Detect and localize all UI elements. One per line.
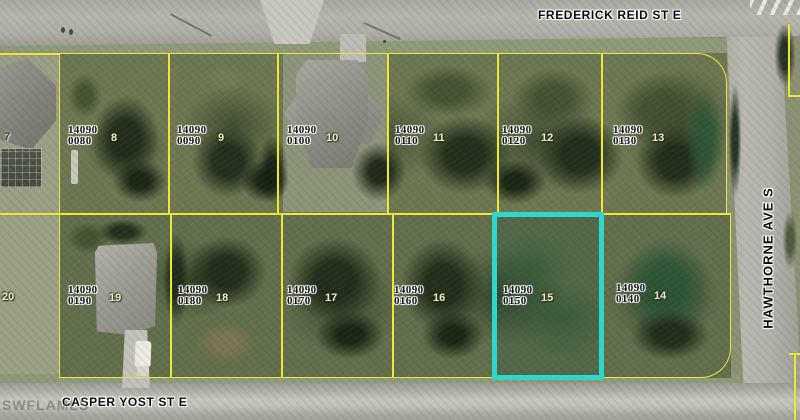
lot-number-7: 7	[4, 131, 10, 143]
apn-line2: 0160	[394, 296, 418, 307]
lot-number-9: 9	[218, 132, 224, 144]
street-label-hawthorne: HAWTHORNE AVE S	[761, 187, 776, 328]
parcel-line	[0, 53, 59, 55]
lot-number-16: 16	[433, 292, 445, 304]
apn-line2: 0170	[287, 296, 311, 307]
lot-number-12: 12	[541, 132, 553, 144]
parcel-line	[788, 95, 800, 97]
parcel-line	[170, 213, 172, 378]
aerial-parcel-map[interactable]: 140900080 140900090 140900100 140900110 …	[0, 0, 800, 420]
parcel-line	[601, 53, 603, 214]
pedestrian	[61, 27, 65, 33]
street-label-frederick-reid: FREDERICK REID ST E	[538, 8, 681, 22]
apn-line2: 0180	[178, 296, 202, 307]
tree-canopy	[770, 10, 800, 100]
apn-line2: 0080	[68, 136, 92, 147]
apn-line2: 0100	[287, 136, 311, 147]
apn-line2: 0110	[395, 136, 418, 147]
lot-number-20: 20	[2, 291, 14, 303]
pool-enclosure-lot7	[0, 148, 42, 188]
apn-line2: 0190	[68, 296, 92, 307]
pedestrian	[69, 29, 73, 35]
lot-number-10: 10	[326, 132, 338, 144]
lot-number-19: 19	[109, 292, 121, 304]
tree-canopy	[726, 60, 744, 220]
lot-number-11: 11	[433, 132, 445, 144]
tree-canopy	[780, 200, 800, 280]
lot-number-17: 17	[325, 292, 337, 304]
parcel-line	[497, 53, 499, 214]
pavement-markings	[750, 0, 800, 15]
lot-number-14: 14	[654, 290, 666, 302]
parcel-line	[0, 213, 731, 215]
apn-line2: 0090	[177, 136, 201, 147]
lot-number-15: 15	[541, 292, 553, 304]
lot-number-8: 8	[111, 132, 117, 144]
utility-pole	[383, 40, 386, 43]
parcel-line	[277, 53, 279, 214]
apn-line2: 0120	[502, 136, 526, 147]
watermark: SWFLAMLS	[2, 397, 89, 413]
lot-number-13: 13	[652, 132, 664, 144]
parcel-line	[387, 53, 389, 214]
parcel-line	[788, 24, 790, 96]
apn-line2: 0130	[613, 136, 637, 147]
parcel-line	[168, 53, 170, 214]
apn-line2: 0150	[503, 296, 527, 307]
lot-number-18: 18	[216, 292, 228, 304]
parcel-line	[281, 213, 283, 378]
parcel-line	[794, 353, 796, 420]
apn-line2: 0140	[616, 294, 640, 305]
